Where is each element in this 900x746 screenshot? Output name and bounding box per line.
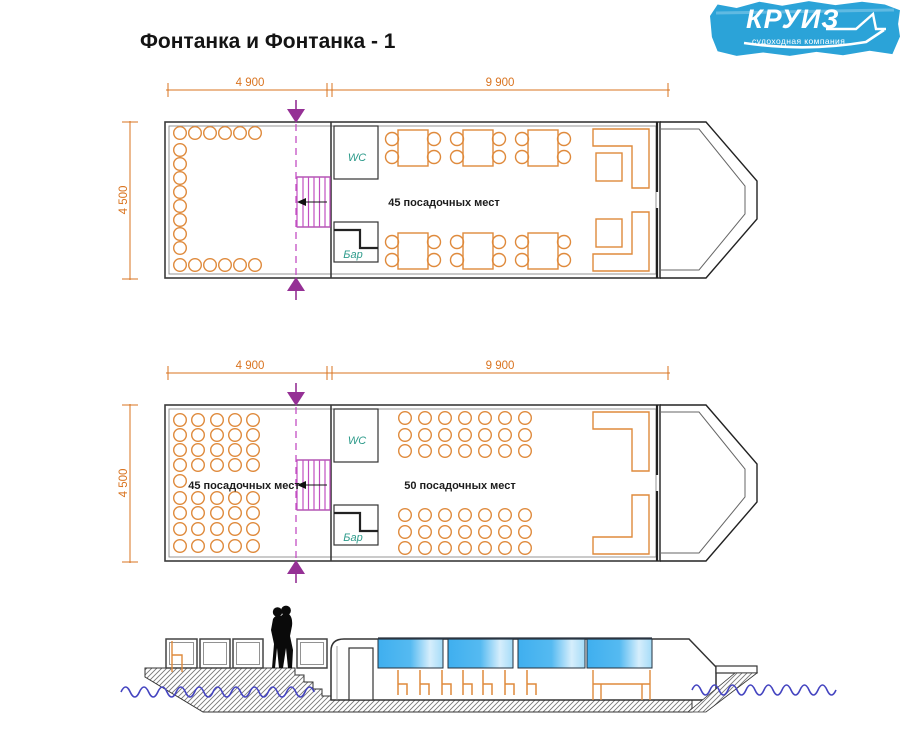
deck1-dim-left: 4 900 — [236, 77, 265, 89]
stern-railing-panels — [166, 639, 327, 668]
deck1-dim-right: 9 900 — [486, 77, 515, 89]
deck1-seats-label: 45 посадочных мест — [388, 197, 500, 209]
deck1-structure — [122, 83, 757, 300]
deck1-bar-label: Бар — [343, 249, 362, 261]
deck2-seats-left-label: 45 посадочных мест — [188, 480, 300, 492]
boat-drawing: 4 900 9 900 4 500 WC Бар 45 посадочных м… — [0, 0, 900, 746]
deck1-wc-label: WC — [348, 152, 366, 164]
side-elevation — [121, 606, 836, 712]
deck2-seats-right-label: 50 посадочных мест — [404, 480, 516, 492]
deck1-open-deck-seats — [174, 127, 262, 272]
deck2-dim-right: 9 900 — [486, 360, 515, 372]
deck2-dim-left: 4 900 — [236, 360, 265, 372]
deck2-content: 4 900 9 900 4 500 WC Бар 45 посадочных м… — [118, 360, 531, 554]
bow-platform — [716, 666, 757, 673]
deck1-dim-side: 4 500 — [118, 186, 130, 215]
deck-plan-page: Фонтанка и Фонтанка - 1 КРУИЗ судоходная… — [0, 0, 900, 746]
deck2-wc-label: WC — [348, 435, 366, 447]
deck2-bar-label: Бар — [343, 532, 362, 544]
couple-silhouette — [271, 606, 293, 668]
cabin-door — [349, 648, 373, 700]
deck2-dim-side: 4 500 — [118, 469, 130, 498]
deck1-content: 4 900 9 900 4 500 WC Бар 45 посадочных м… — [118, 77, 622, 271]
